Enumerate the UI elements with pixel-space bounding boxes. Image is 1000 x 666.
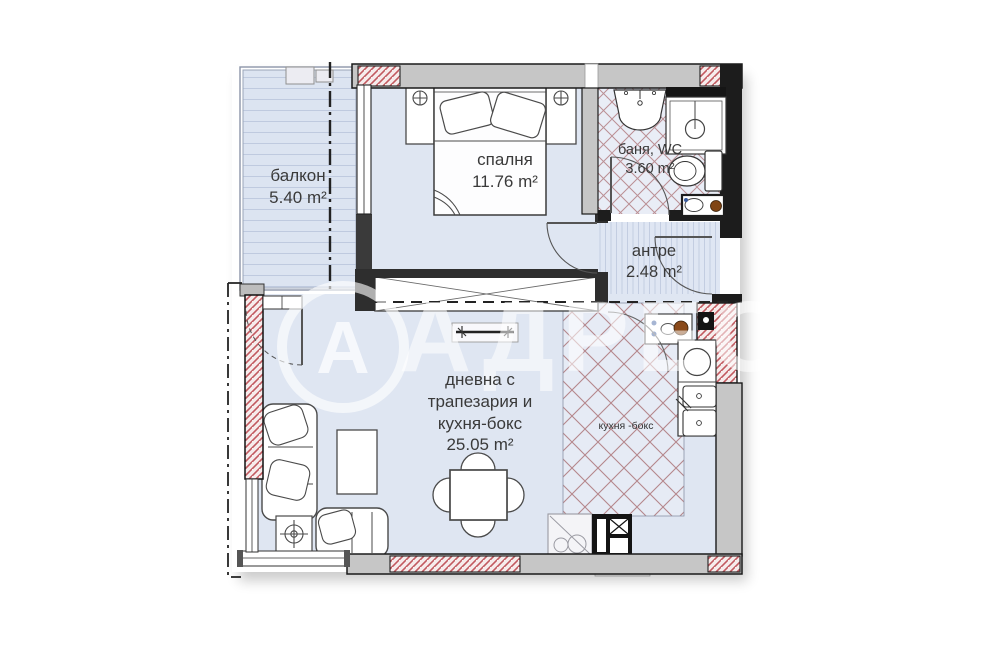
wall-top-joint [585,64,598,88]
living-area: 25.05 m² [398,434,562,456]
label-living: дневна с трапезария и кухня-бокс 25.05 m… [398,369,562,456]
label-kitchen: кухня -бокс [573,420,679,433]
lamp-icon [413,91,427,105]
wall-right-lower [716,383,742,556]
bath-cabinet [682,195,724,216]
balcony-unit-icon [286,67,314,84]
bedroom-area: 11.76 m² [437,171,573,193]
bathroom-area: 3.60 m² [592,160,708,179]
hallway-area: 2.48 m² [596,262,712,283]
wardrobe [375,277,598,311]
coffee-table [337,430,377,494]
window-south [237,550,350,567]
floorplan-canvas: А АДРЕС балкон 5.40 m² спалня 11.76 m² б… [0,0,1000,666]
kitchen-pipe-dot [703,317,709,323]
label-bathroom: баня, WC 3.60 m² [592,141,708,178]
label-hallway: антре 2.48 m² [596,241,712,283]
wall-bedroom-corner [355,269,375,311]
wall-hatch-block [358,66,400,86]
wall-top [352,64,742,88]
dining-table [450,470,507,520]
window-bedroom-balcony [356,85,372,282]
washing-machine [548,514,592,556]
plant-table [276,516,312,552]
hallway-name: антре [596,241,712,262]
wall-bathroom-south-left [598,210,611,221]
floorplan-drawing [0,0,1000,666]
property-dashdot-line [228,283,247,577]
lamp-icon [554,91,568,105]
balcony-area: 5.40 m² [238,187,358,209]
wall-hatch-block [390,556,520,572]
window-west [246,479,258,552]
bathroom-name: баня, WC [592,141,708,160]
living-name-line1: дневна с [398,369,562,391]
radiator [452,323,518,342]
wall-left-stub [240,284,264,296]
label-balcony: балкон 5.40 m² [238,165,358,209]
bedroom-name: спалня [437,149,573,171]
balcony-name: балкон [238,165,358,187]
kitchen-name: кухня -бокс [573,420,679,433]
wall-bedroom-south [355,269,598,278]
label-bedroom: спалня 11.76 m² [437,149,573,193]
living-name-line3: кухня-бокс [398,413,562,435]
living-name-line2: трапезария и [398,391,562,413]
shaft-box [592,514,632,557]
wall-hatch-block [708,556,740,572]
